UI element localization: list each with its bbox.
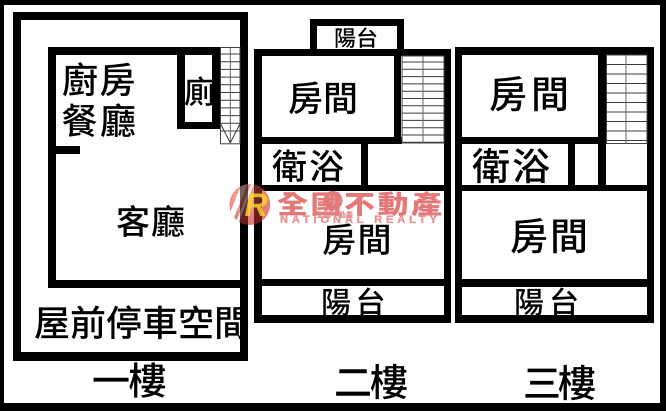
svg-text:R: R xyxy=(245,187,268,223)
svg-text:NATIONAL REALTY: NATIONAL REALTY xyxy=(280,214,441,226)
